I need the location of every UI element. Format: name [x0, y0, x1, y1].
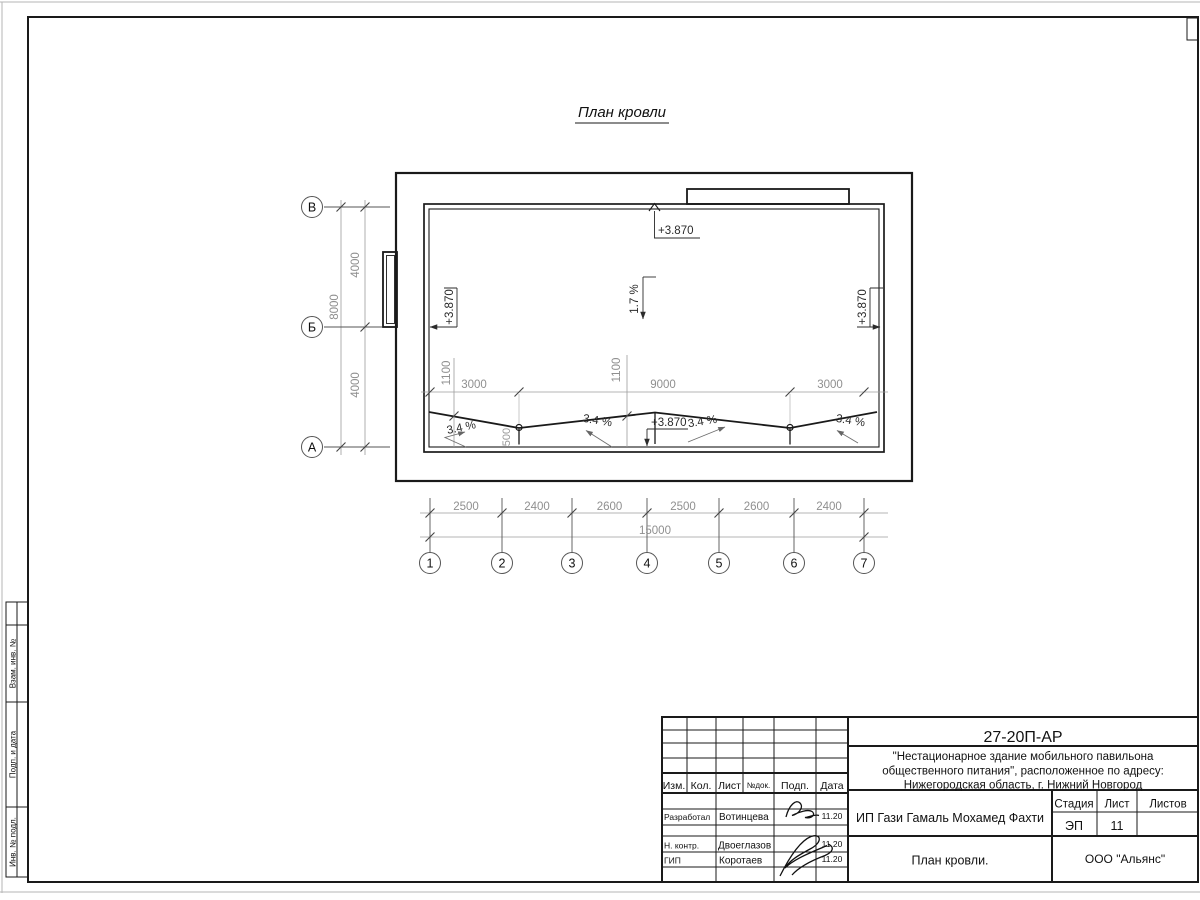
row-date-developer: 11.20 [822, 811, 843, 821]
dim-2600-1: 2600 [597, 501, 623, 513]
dim-4000-bottom: 4000 [350, 372, 362, 398]
row-role-developer: Разработал [664, 812, 710, 822]
svg-text:3.4 %: 3.4 % [582, 413, 613, 429]
dim-9000: 9000 [650, 379, 676, 391]
svg-text:+3.870: +3.870 [444, 289, 456, 325]
svg-text:3.4 %: 3.4 % [446, 419, 477, 437]
col-izm: Изм. [663, 780, 686, 792]
axis-number-7: 7 [861, 557, 868, 571]
stage-label: Стадия [1054, 799, 1093, 811]
axis-letter-a: А [308, 441, 317, 455]
row-role-ncontrol: Н. контр. [664, 841, 699, 851]
side-label-podp-data: Подп. и дата [9, 730, 18, 778]
stage-value: ЭП [1065, 819, 1083, 833]
svg-text:+3.870: +3.870 [658, 225, 694, 237]
dim-15000: 15000 [639, 525, 671, 537]
dim-8000: 8000 [329, 294, 341, 320]
drawing-sheet: Взам. инв. № Подп. и дата Инв. № подл. П… [0, 0, 1200, 900]
building-outline [396, 173, 912, 481]
dim-3000-right: 3000 [817, 379, 843, 391]
list-label: Лист [1105, 799, 1131, 811]
dim-2400-1: 2400 [524, 501, 550, 513]
col-podp: Подп. [781, 780, 809, 792]
row-name-developer: Вотинцева [719, 812, 769, 823]
left-dim-lines [341, 200, 365, 455]
axis-number-3: 3 [569, 557, 576, 571]
row-name-ncontrol: Двоеглазов [718, 841, 771, 852]
row-name-gip: Коротаев [719, 856, 762, 867]
dim-2500-2: 2500 [670, 501, 696, 513]
slope-main-annotation: 1.7 % [629, 277, 656, 319]
elevation-mark-left: +3.870 [430, 288, 457, 327]
roof-canopy-top [687, 189, 849, 204]
axis-number-4: 4 [644, 557, 651, 571]
project-name-line2: общественного питания", расположенное по… [882, 766, 1164, 778]
parapet-inner [429, 209, 879, 447]
col-kol: Кол. [691, 780, 712, 792]
side-canopy-left-inner [387, 256, 395, 324]
axis-letter-b: Б [308, 321, 316, 335]
parapet-outer [424, 204, 884, 452]
dim-500: 500 [501, 428, 513, 446]
company-name: ООО "Альянс" [1085, 852, 1165, 866]
client-name: ИП Гази Гамаль Мохамед Фахти [856, 811, 1044, 825]
side-label-inv-podl: Инв. № подл. [9, 817, 18, 867]
dim-3000-left: 3000 [461, 379, 487, 391]
axis-letter-v: В [308, 201, 316, 215]
plan-title: План кровли [578, 104, 667, 121]
listov-label: Листов [1149, 799, 1186, 811]
axis-number-1: 1 [427, 557, 434, 571]
svg-text:1.7 %: 1.7 % [629, 284, 641, 313]
doc-number: 27-20П-АР [983, 729, 1062, 746]
dim-2600-2: 2600 [744, 501, 770, 513]
svg-text:+3.870: +3.870 [651, 417, 687, 429]
left-axis-lines [324, 207, 390, 447]
axis-number-5: 5 [716, 557, 723, 571]
side-label-vzam-inv: Взам. инв. № [9, 638, 18, 688]
frame-corner-box [1187, 18, 1198, 40]
dim-1100-left: 1100 [441, 361, 453, 386]
roof-plan-drawing: Взам. инв. № Подп. и дата Инв. № подл. П… [0, 0, 1200, 900]
offset-extension-lines [454, 355, 627, 447]
axis-number-2: 2 [499, 557, 506, 571]
signature-developer [786, 802, 819, 818]
list-value: 11 [1111, 819, 1124, 833]
dim-2400-2: 2400 [816, 501, 842, 513]
svg-text:+3.870: +3.870 [857, 289, 869, 325]
elevation-mark-ridge: +3.870 [647, 417, 688, 446]
sheet-caption: План кровли. [911, 854, 988, 868]
dim-1100-mid: 1100 [611, 358, 623, 383]
dim-2500-1: 2500 [453, 501, 479, 513]
col-ndok: №док. [747, 781, 770, 790]
project-name-line1: "Нестационарное здание мобильного павиль… [893, 751, 1154, 763]
project-name-line3: Нижегородская область, г. Нижний Новгоро… [904, 780, 1143, 792]
col-data: Дата [820, 780, 843, 792]
col-list: Лист [718, 780, 741, 792]
axis-number-6: 6 [791, 557, 798, 571]
row-role-gip: ГИП [664, 856, 681, 866]
dim-4000-top: 4000 [350, 252, 362, 278]
